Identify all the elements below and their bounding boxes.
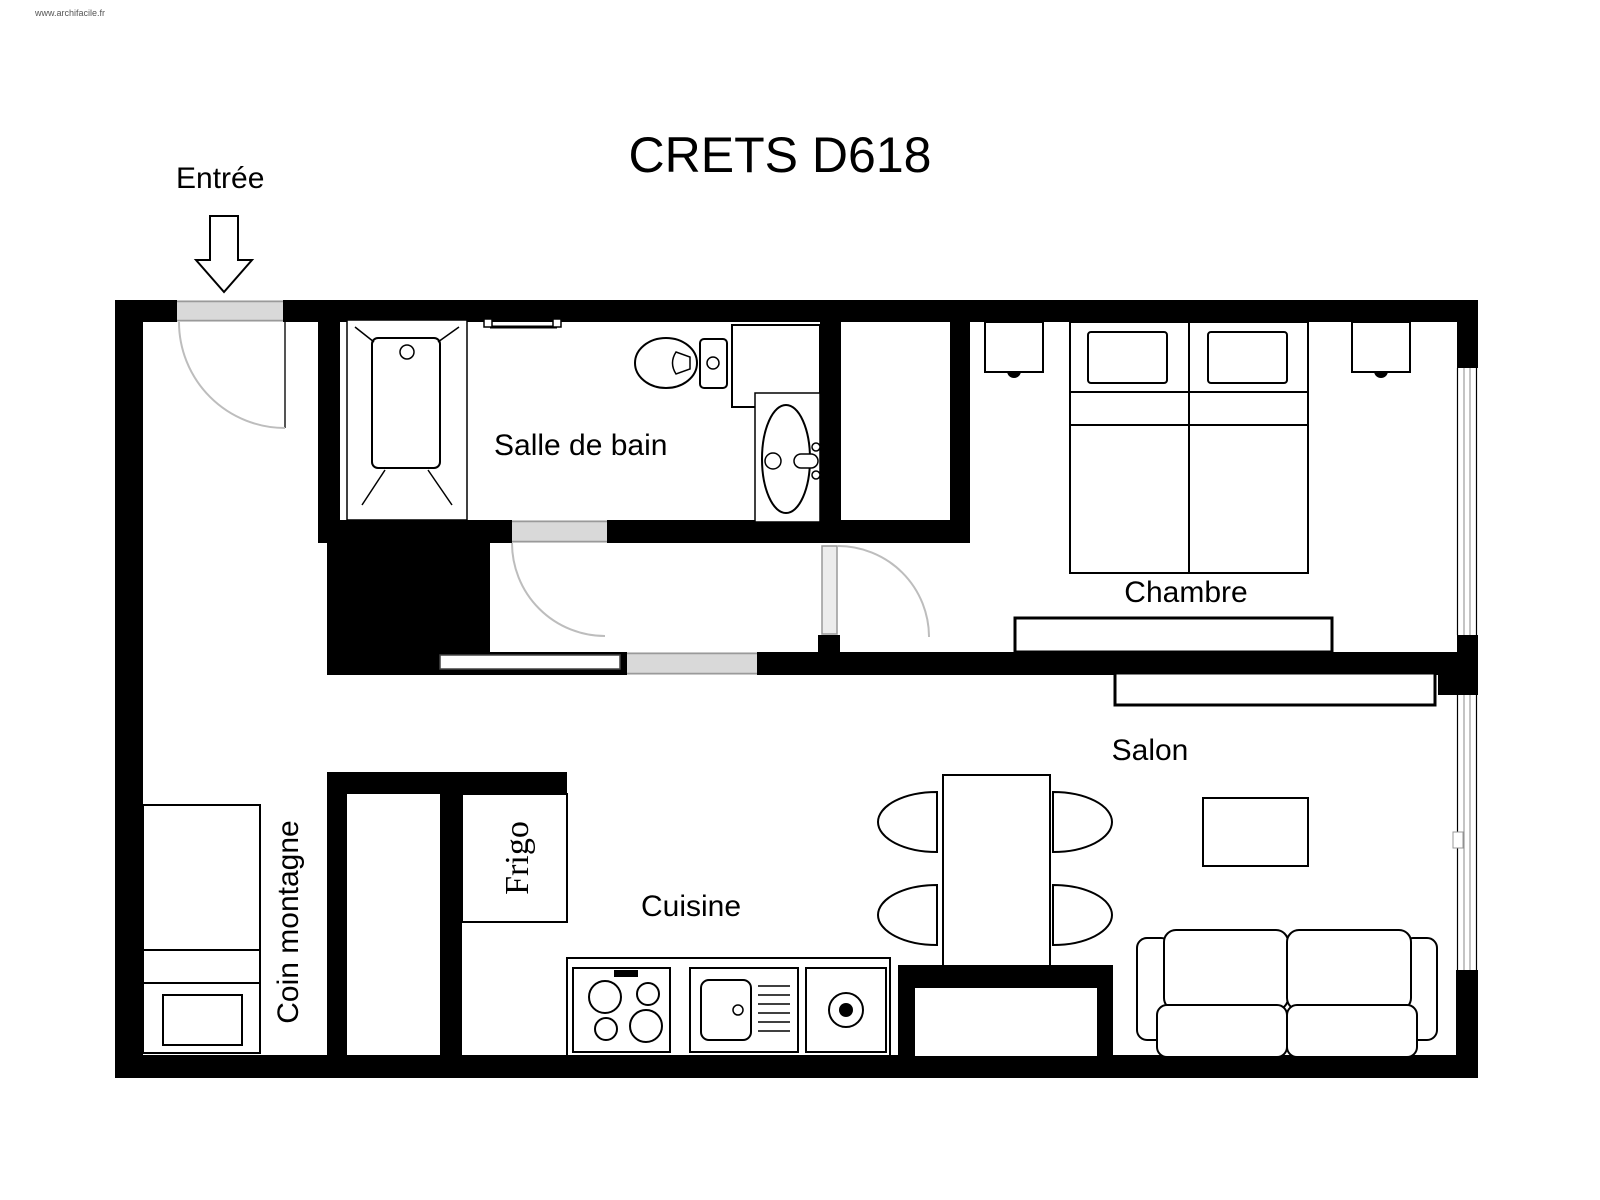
sofa-seat-cushion bbox=[1287, 1005, 1417, 1057]
entrance-door-arc bbox=[179, 322, 285, 428]
kitchen-sink bbox=[690, 968, 798, 1052]
bunk-bed-pillow bbox=[163, 995, 242, 1045]
wall-bathroom-left bbox=[318, 322, 340, 543]
bathroom-door bbox=[512, 520, 607, 636]
bedroom-door-arc bbox=[838, 546, 929, 637]
chair bbox=[878, 885, 937, 945]
pillow-left bbox=[1088, 332, 1167, 383]
bedroom-window bbox=[1456, 368, 1478, 635]
washbasin bbox=[755, 393, 820, 522]
blanket-fold-left bbox=[1070, 392, 1189, 425]
bunk-bed-fold bbox=[143, 950, 260, 983]
sofa-back-cushion bbox=[1287, 930, 1411, 1010]
stove-control-strip bbox=[614, 970, 638, 977]
mountain-corner-furniture bbox=[143, 805, 260, 1053]
mountain-corner-label: Coin montagne bbox=[272, 820, 305, 1023]
wall-closet-left bbox=[820, 322, 841, 543]
bedroom-door-leaf bbox=[822, 546, 837, 634]
sliding-door-leaf bbox=[440, 655, 620, 669]
wall-left bbox=[115, 300, 143, 1078]
wall-bathroom-bottom-left bbox=[318, 520, 512, 543]
sofa bbox=[1137, 930, 1437, 1057]
living-room-shelf bbox=[1115, 673, 1435, 705]
bedroom-door bbox=[822, 546, 929, 637]
nightstand-left bbox=[985, 322, 1043, 372]
blanket-fold-right bbox=[1189, 392, 1308, 425]
toilet bbox=[635, 338, 727, 388]
nightstand-right bbox=[1352, 322, 1410, 372]
wall-kitchen-closet-top bbox=[327, 772, 567, 794]
bathroom-door-arc bbox=[512, 543, 605, 636]
entrance-label: Entrée bbox=[176, 162, 264, 195]
wall-right-top-corner bbox=[1457, 300, 1478, 368]
chair bbox=[1053, 792, 1112, 852]
bathroom-label: Salle de bain bbox=[494, 429, 667, 462]
burner bbox=[637, 983, 659, 1005]
chair bbox=[878, 792, 937, 852]
washing-machine bbox=[806, 968, 886, 1052]
living-room-label: Salon bbox=[1112, 734, 1189, 767]
wall-right-bottom bbox=[1456, 970, 1478, 1078]
bathtub bbox=[347, 320, 467, 520]
dining-set bbox=[878, 775, 1112, 967]
nightstand-right-knob bbox=[1374, 371, 1388, 378]
wall-bathroom-bottom-right bbox=[607, 520, 970, 543]
faucet-icon bbox=[794, 454, 818, 468]
wall-bottom bbox=[115, 1055, 1478, 1078]
sofa-seat-cushion bbox=[1157, 1005, 1287, 1057]
bedroom-label: Chambre bbox=[1124, 576, 1247, 609]
fireplace-unit bbox=[898, 965, 1113, 1078]
bedroom-shelf bbox=[1015, 618, 1332, 652]
wall-top bbox=[283, 300, 1478, 322]
wall-closet-right bbox=[950, 322, 970, 543]
fridge-label: Frigo bbox=[499, 821, 536, 895]
nightstand-left-knob bbox=[1007, 371, 1021, 378]
twin-beds bbox=[1070, 322, 1308, 573]
wall-kitchen-closet-left bbox=[327, 772, 347, 1055]
coffee-table bbox=[1203, 798, 1308, 866]
bathroom-fixtures bbox=[347, 319, 820, 522]
dining-table bbox=[943, 775, 1050, 967]
entrance-door bbox=[177, 300, 285, 428]
stove bbox=[573, 968, 670, 1052]
plan-title: CRETS D618 bbox=[629, 127, 932, 183]
burner bbox=[589, 981, 621, 1013]
entrance-arrow-icon bbox=[196, 216, 252, 292]
burner bbox=[630, 1010, 662, 1042]
living-room-window bbox=[1453, 695, 1478, 970]
burner bbox=[595, 1018, 617, 1040]
pillow-right bbox=[1208, 332, 1287, 383]
chair bbox=[1053, 885, 1112, 945]
floor-plan-canvas: www.archifacile.fr CRETS D618 Entrée Sal… bbox=[0, 0, 1600, 1200]
floor-plan-page: www.archifacile.fr CRETS D618 Entrée Sal… bbox=[0, 0, 1600, 1200]
watermark: www.archifacile.fr bbox=[34, 8, 105, 18]
kitchen-label: Cuisine bbox=[641, 890, 741, 923]
wall-right-mid-stub bbox=[1457, 635, 1478, 695]
window-joint-notch bbox=[1453, 832, 1463, 848]
sofa-back-cushion bbox=[1164, 930, 1288, 1010]
wall-kitchen-closet-mid bbox=[440, 794, 462, 1055]
